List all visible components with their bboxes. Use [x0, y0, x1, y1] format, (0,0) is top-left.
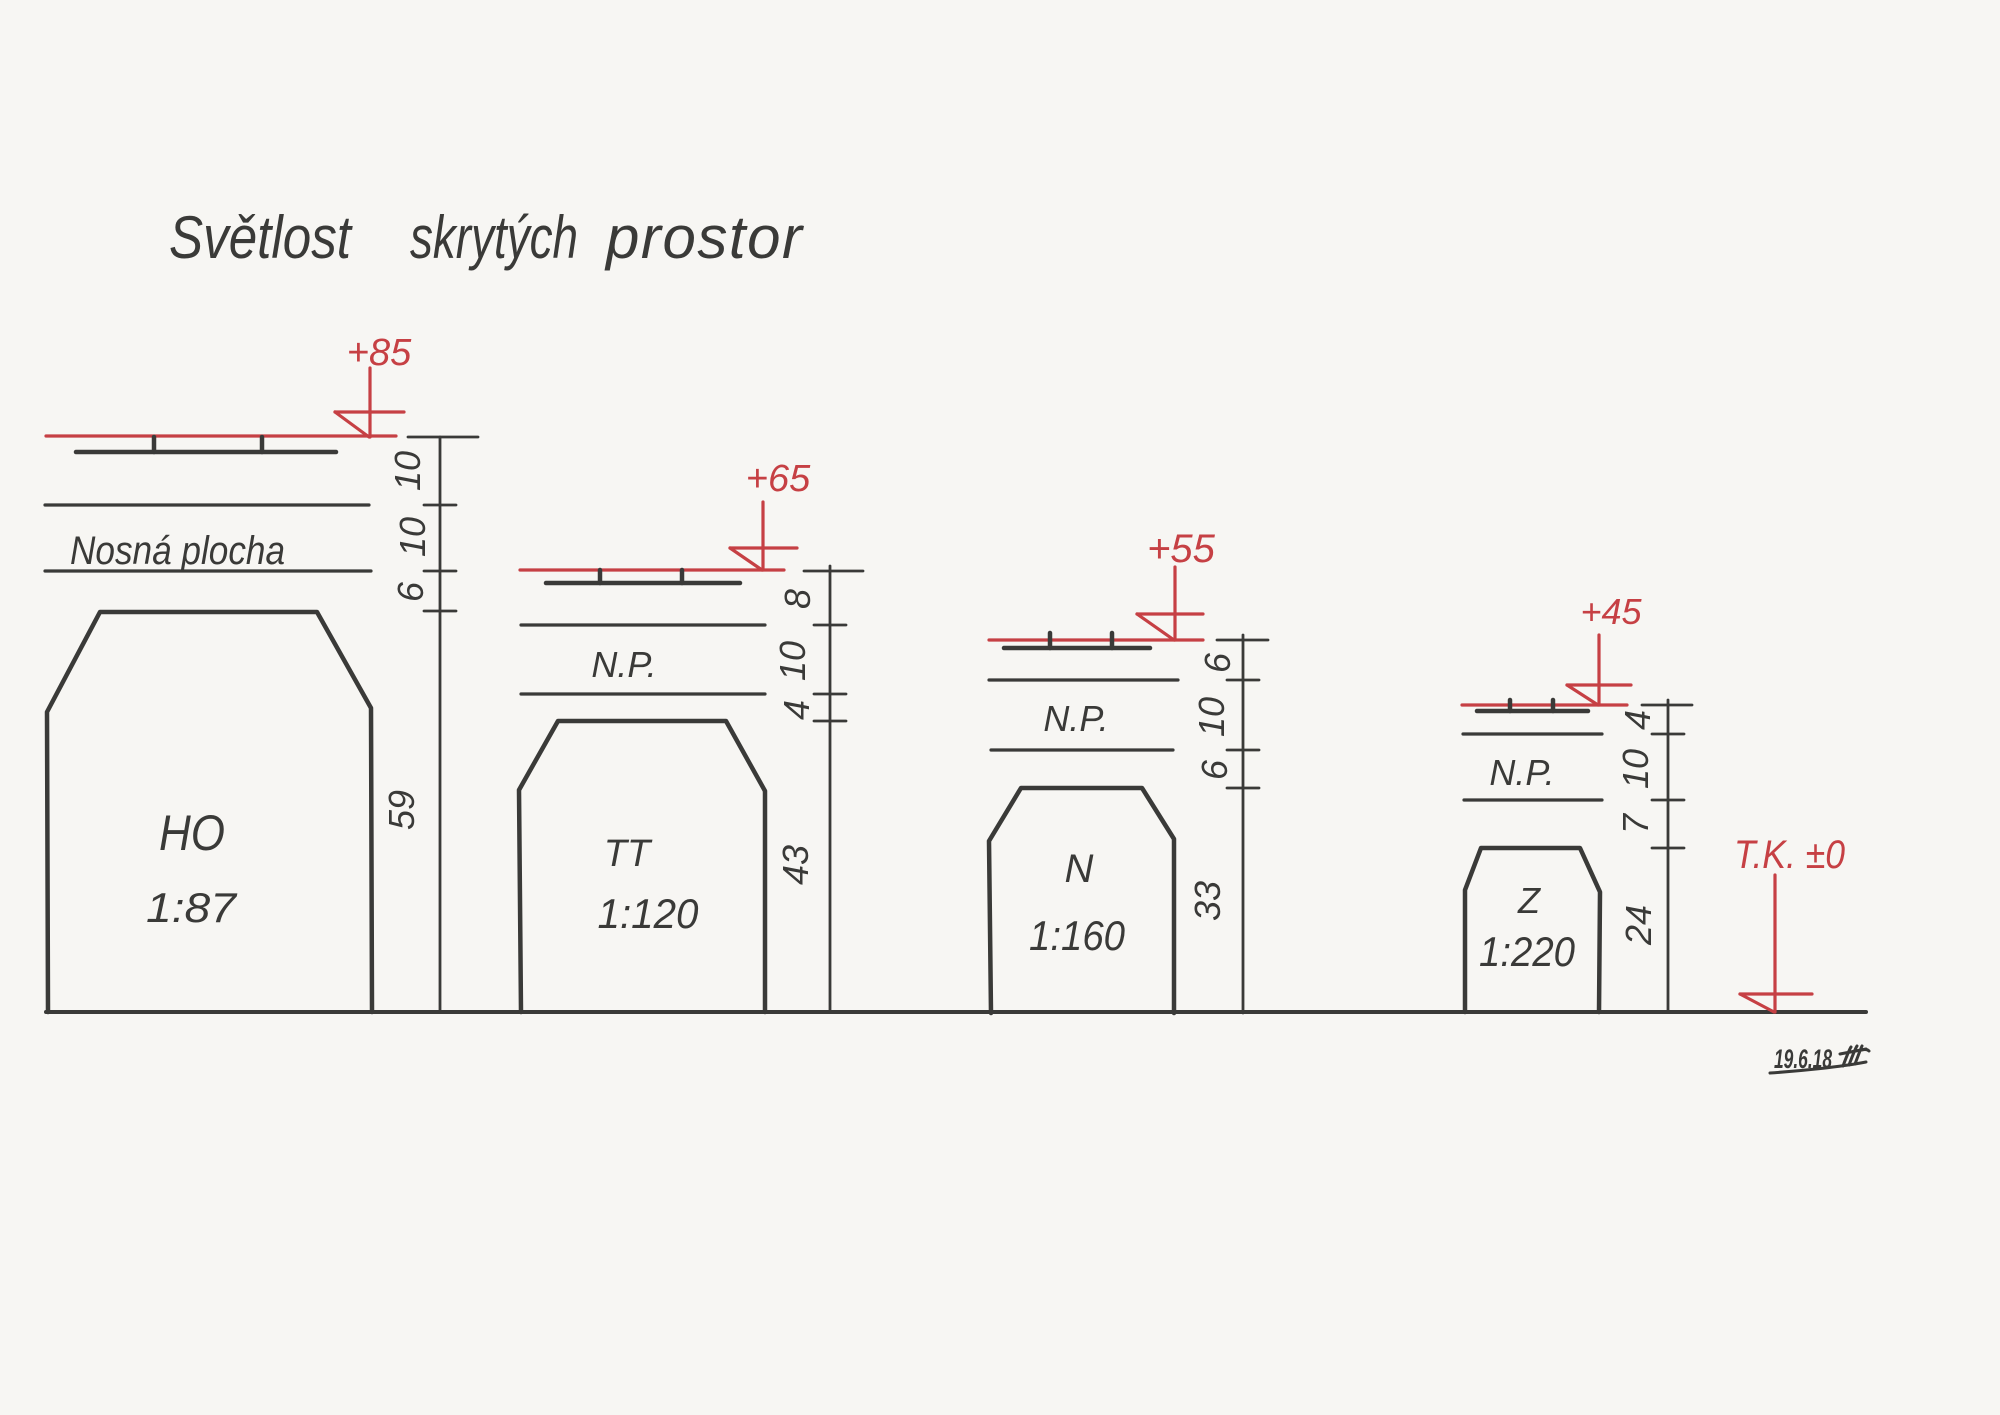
- svg-text:1:87: 1:87: [146, 884, 238, 931]
- svg-text:1:120: 1:120: [598, 890, 700, 937]
- svg-text:Nosná plocha: Nosná plocha: [70, 529, 285, 573]
- svg-text:N.P.: N.P.: [1043, 698, 1108, 739]
- svg-text:10: 10: [1191, 697, 1232, 737]
- svg-text:6: 6: [1197, 652, 1238, 673]
- svg-text:HO: HO: [159, 805, 225, 861]
- svg-text:4: 4: [1617, 710, 1658, 730]
- svg-text:6: 6: [390, 581, 431, 602]
- svg-text:N.P.: N.P.: [1489, 752, 1554, 793]
- svg-text:Z: Z: [1517, 880, 1541, 921]
- svg-text:10: 10: [1615, 749, 1656, 789]
- svg-text:N.P.: N.P.: [591, 644, 656, 685]
- svg-text:skrytých: skrytých: [410, 204, 578, 271]
- svg-text:4: 4: [776, 700, 817, 720]
- svg-text:1:160: 1:160: [1029, 912, 1126, 959]
- svg-text:10: 10: [392, 517, 433, 557]
- svg-text:10: 10: [387, 451, 428, 491]
- svg-text:24: 24: [1618, 905, 1659, 946]
- svg-text:8: 8: [777, 589, 818, 609]
- svg-text:prostor: prostor: [604, 204, 804, 271]
- svg-text:+65: +65: [746, 458, 811, 500]
- svg-text:59: 59: [381, 790, 422, 830]
- svg-text:N: N: [1065, 847, 1094, 891]
- svg-text:+45: +45: [1580, 591, 1642, 632]
- svg-text:33: 33: [1187, 881, 1228, 921]
- svg-text:7: 7: [1615, 812, 1656, 834]
- svg-text:1:220: 1:220: [1479, 928, 1576, 975]
- svg-text:Světlost: Světlost: [169, 204, 353, 271]
- svg-text:+85: +85: [347, 332, 412, 374]
- svg-text:TT: TT: [604, 833, 653, 875]
- svg-text:+55: +55: [1147, 527, 1216, 571]
- svg-text:43: 43: [775, 845, 816, 885]
- svg-text:6: 6: [1194, 759, 1235, 780]
- svg-text:T.K. ±0: T.K. ±0: [1734, 833, 1845, 877]
- svg-text:10: 10: [772, 641, 813, 681]
